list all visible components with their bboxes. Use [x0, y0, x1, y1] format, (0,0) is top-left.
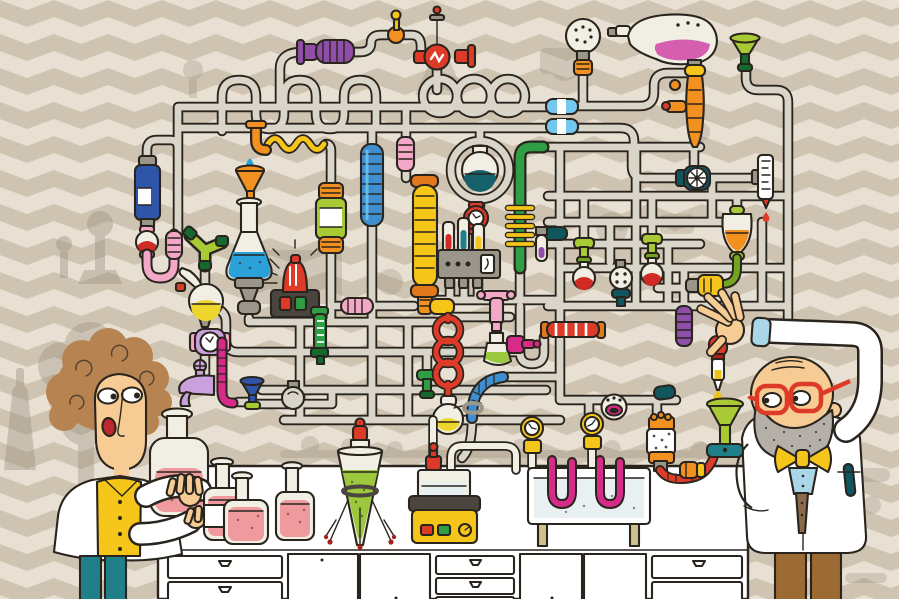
blue-ribbed-column-icon [361, 144, 383, 226]
man-cuff [751, 317, 771, 346]
purple-coil-coupling-icon [297, 40, 354, 64]
wheel-valve-icon [676, 166, 710, 190]
blue-reagent-bottle-icon [135, 156, 160, 258]
lab-maze-illustration [0, 0, 899, 599]
teal-coupling2-icon [653, 385, 676, 401]
filter-canister-icon [647, 412, 675, 471]
illustration-canvas [0, 0, 899, 599]
green-syringe-icon [311, 307, 328, 364]
pink-ribbed-coupling-icon [341, 298, 373, 314]
man-vest [789, 468, 817, 494]
hot-plate-icon [409, 470, 480, 543]
purple-test-tube-icon [536, 227, 547, 261]
red-striped-coupling-icon [541, 322, 605, 338]
flask-of-green-liquid-icon [490, 333, 503, 343]
green-canister-icon [316, 183, 346, 253]
dotted-sphere-valve-icon [602, 395, 627, 420]
man-tie [796, 493, 808, 533]
purple-ribbed-coupling-icon [676, 306, 692, 346]
